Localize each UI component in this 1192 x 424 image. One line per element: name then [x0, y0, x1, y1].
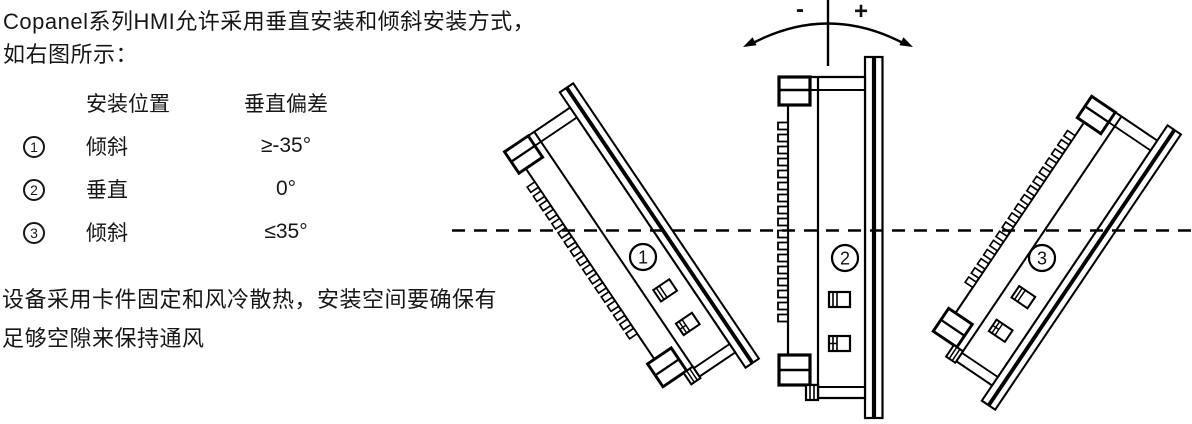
panel-side-view-1: [493, 83, 758, 412]
plus-label: +: [854, 0, 868, 25]
panel-side-view-2: [778, 57, 883, 418]
arc-arrowhead-left: [743, 37, 757, 47]
panel-side-view-3: [915, 81, 1180, 410]
panels-layer: [493, 57, 1180, 418]
mounting-diagram: - + 123: [0, 0, 1192, 424]
angle-indicator: - +: [743, 0, 913, 66]
minus-label: -: [796, 0, 804, 23]
panel-label-number-3: 3: [1037, 249, 1047, 269]
panel-label-number-2: 2: [840, 249, 850, 269]
panel-label-number-1: 1: [638, 248, 648, 268]
arc-arrowhead-right: [899, 37, 913, 47]
